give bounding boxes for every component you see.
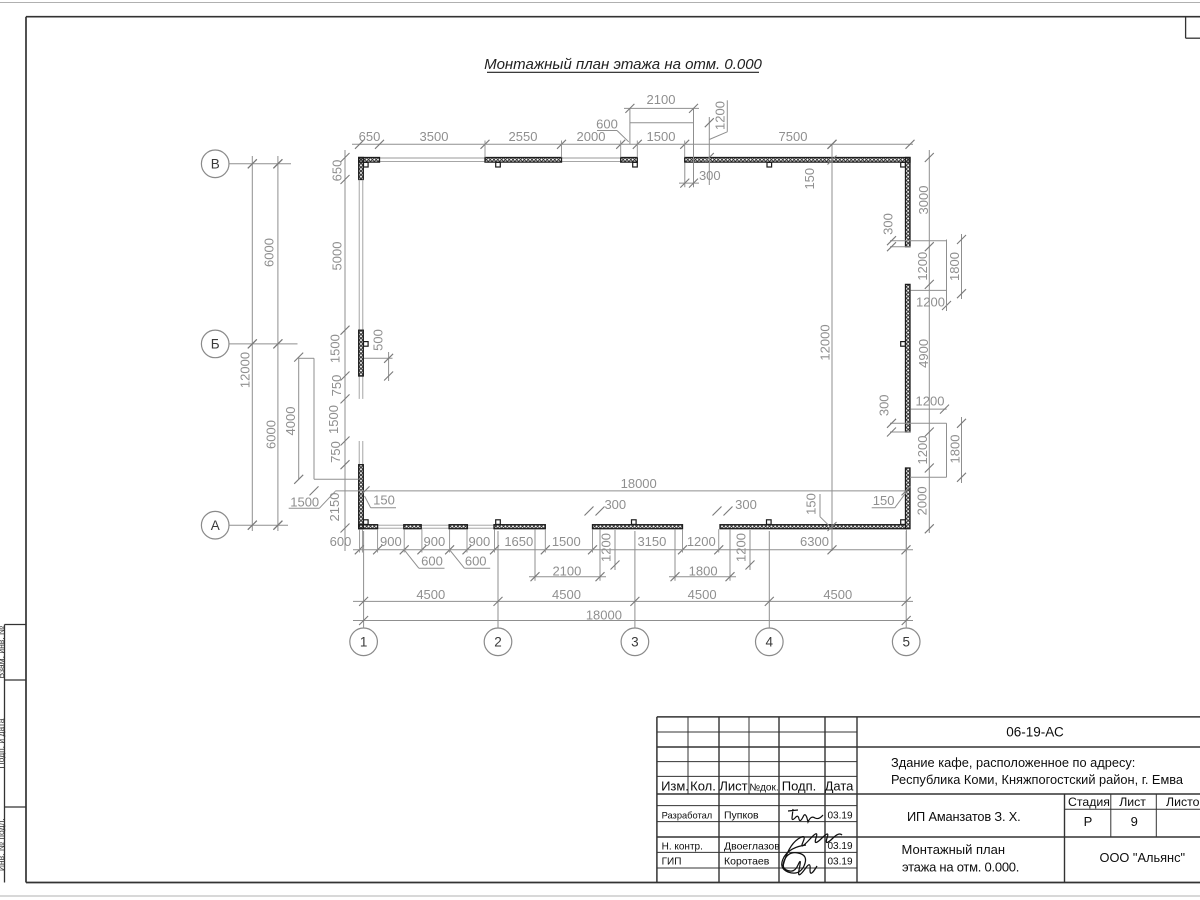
svg-text:600: 600 — [465, 553, 487, 568]
svg-text:4500: 4500 — [823, 587, 852, 602]
svg-text:650: 650 — [330, 160, 345, 182]
svg-text:150: 150 — [373, 493, 395, 508]
svg-text:Здание кафе, расположенное по: Здание кафе, расположенное по адресу: — [891, 755, 1135, 770]
svg-text:750: 750 — [329, 375, 344, 397]
svg-text:5000: 5000 — [330, 242, 345, 271]
svg-text:1800: 1800 — [689, 563, 718, 578]
svg-text:Стадия: Стадия — [1068, 795, 1110, 809]
svg-text:Р: Р — [1084, 814, 1093, 829]
svg-text:Подп.: Подп. — [782, 779, 817, 794]
svg-text:2100: 2100 — [647, 92, 676, 107]
svg-text:300: 300 — [877, 394, 892, 416]
svg-text:1500: 1500 — [290, 494, 319, 509]
svg-text:Двоеглазов: Двоеглазов — [724, 841, 780, 853]
svg-text:ГИП: ГИП — [662, 857, 682, 868]
svg-text:150: 150 — [873, 493, 895, 508]
svg-text:Взам. инв. №: Взам. инв. № — [0, 626, 6, 679]
svg-text:900: 900 — [380, 534, 402, 549]
svg-text:1200: 1200 — [915, 252, 930, 281]
svg-text:2000: 2000 — [915, 486, 930, 515]
svg-text:03.19: 03.19 — [827, 857, 852, 868]
svg-text:300: 300 — [699, 168, 721, 183]
svg-text:1800: 1800 — [948, 435, 963, 464]
svg-text:Дата: Дата — [825, 779, 855, 794]
svg-text:ИП Аманзатов З. Х.: ИП Аманзатов З. Х. — [907, 809, 1021, 824]
svg-text:Н. контр.: Н. контр. — [662, 842, 703, 853]
svg-text:600: 600 — [596, 117, 618, 132]
svg-text:9: 9 — [1131, 814, 1138, 829]
svg-text:Лист: Лист — [1119, 795, 1146, 809]
svg-text:03.19: 03.19 — [827, 841, 852, 852]
svg-text:150: 150 — [804, 493, 819, 515]
svg-text:06-19-АС: 06-19-АС — [1006, 725, 1064, 740]
svg-text:4500: 4500 — [688, 587, 717, 602]
svg-text:1200: 1200 — [713, 101, 728, 130]
svg-text:1: 1 — [360, 634, 368, 649]
svg-text:2100: 2100 — [552, 563, 581, 578]
svg-text:4000: 4000 — [283, 407, 298, 436]
svg-text:3500: 3500 — [420, 129, 449, 144]
svg-text:1200: 1200 — [916, 393, 945, 408]
svg-text:А: А — [211, 518, 220, 533]
svg-text:1200: 1200 — [599, 533, 614, 562]
svg-text:600: 600 — [421, 553, 443, 568]
svg-text:600: 600 — [330, 534, 352, 549]
svg-text:1200: 1200 — [687, 534, 716, 549]
svg-text:Лист: Лист — [719, 779, 747, 794]
svg-text:300: 300 — [881, 213, 896, 235]
svg-text:1200: 1200 — [915, 436, 930, 465]
svg-text:12000: 12000 — [238, 352, 253, 388]
svg-text:2150: 2150 — [327, 493, 342, 522]
svg-text:3150: 3150 — [637, 534, 666, 549]
svg-text:Подп. и дата: Подп. и дата — [0, 718, 6, 768]
svg-text:650: 650 — [359, 129, 381, 144]
svg-text:3000: 3000 — [916, 186, 931, 215]
svg-text:Изм.: Изм. — [661, 779, 689, 794]
svg-text:Коротаев: Коротаев — [724, 856, 770, 868]
svg-text:Монтажный план: Монтажный план — [902, 842, 1006, 857]
svg-text:Кол.: Кол. — [690, 779, 716, 794]
svg-text:300: 300 — [604, 497, 626, 512]
svg-text:1500: 1500 — [552, 534, 581, 549]
svg-text:4500: 4500 — [416, 587, 445, 602]
svg-text:4900: 4900 — [916, 339, 931, 368]
svg-text:6000: 6000 — [262, 238, 277, 267]
svg-text:18000: 18000 — [586, 607, 622, 622]
svg-text:Листов: Листов — [1166, 795, 1200, 809]
svg-text:Б: Б — [211, 337, 220, 352]
svg-text:1800: 1800 — [947, 252, 962, 281]
svg-text:750: 750 — [328, 441, 343, 463]
svg-text:Пупков: Пупков — [724, 810, 759, 822]
svg-text:1200: 1200 — [916, 295, 945, 310]
svg-text:4: 4 — [766, 634, 774, 649]
svg-text:1500: 1500 — [328, 334, 343, 363]
svg-text:2: 2 — [494, 634, 502, 649]
svg-text:5: 5 — [902, 634, 910, 649]
svg-text:Монтажный план этажа на отм. 0: Монтажный план этажа на отм. 0.000 — [484, 56, 762, 73]
svg-text:4500: 4500 — [552, 587, 581, 602]
svg-text:900: 900 — [424, 534, 446, 549]
svg-text:Республика Коми, Княжпогостски: Республика Коми, Княжпогостский район, г… — [891, 772, 1184, 787]
svg-text:№док.: №док. — [749, 783, 778, 794]
svg-text:Разработал: Разработал — [662, 811, 713, 821]
svg-text:этажа на отм. 0.000.: этажа на отм. 0.000. — [902, 860, 1019, 875]
svg-text:В: В — [211, 156, 220, 171]
svg-text:1200: 1200 — [734, 533, 749, 562]
svg-text:6300: 6300 — [800, 534, 829, 549]
svg-text:3: 3 — [631, 634, 639, 649]
svg-text:03.19: 03.19 — [827, 811, 852, 822]
svg-text:ООО "Альянс": ООО "Альянс" — [1100, 850, 1186, 865]
svg-text:6000: 6000 — [264, 420, 279, 449]
svg-text:1500: 1500 — [326, 405, 341, 434]
svg-text:300: 300 — [735, 497, 757, 512]
svg-text:900: 900 — [469, 534, 491, 549]
svg-text:7500: 7500 — [779, 129, 808, 144]
svg-text:Инв. № подл.: Инв. № подл. — [0, 818, 6, 871]
svg-text:1500: 1500 — [647, 129, 676, 144]
svg-text:18000: 18000 — [621, 476, 657, 491]
svg-text:12000: 12000 — [818, 324, 833, 360]
svg-text:2550: 2550 — [509, 129, 538, 144]
svg-text:150: 150 — [802, 168, 817, 190]
svg-text:1650: 1650 — [504, 534, 533, 549]
svg-text:500: 500 — [371, 329, 386, 351]
